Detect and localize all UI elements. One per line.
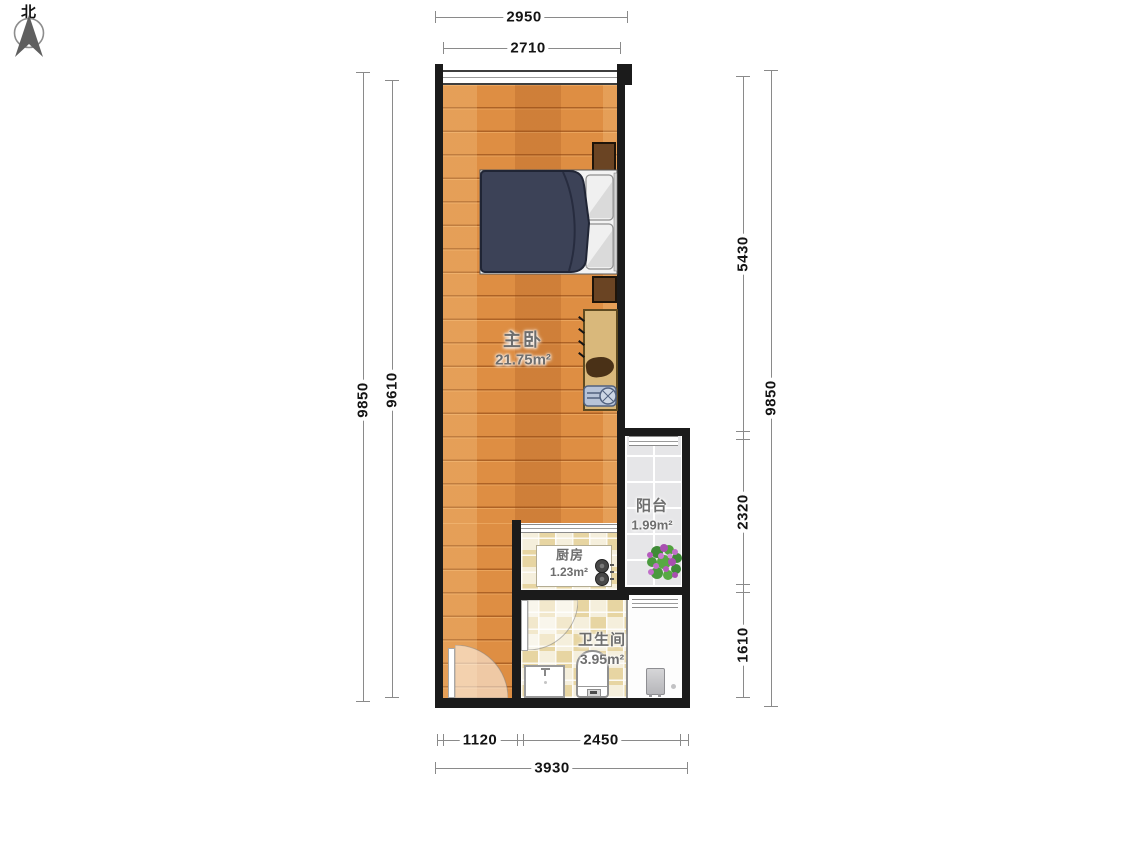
wall-balcony-bottom [621, 587, 690, 595]
stroller-item [583, 383, 618, 408]
bathroom-sink [524, 665, 565, 698]
dim-label-bottom-right: 2450 [580, 732, 621, 749]
dim-label-top-outer: 2950 [503, 9, 544, 26]
wall-kitchen-bottom [512, 590, 629, 600]
dim-label-bottom-outer: 3930 [531, 760, 572, 777]
bathroom-door-panel [521, 600, 528, 651]
plant-icon [644, 542, 684, 582]
dim-label-right-lower: 1610 [735, 624, 752, 665]
balcony-name-label: 阳台 [636, 495, 668, 516]
nightstand-bottom [592, 276, 617, 303]
water-heater [646, 668, 665, 695]
wall-balcony-top [621, 428, 690, 436]
dim-label-right-upper: 5430 [735, 233, 752, 274]
window-balcony [629, 436, 678, 446]
dim-label-left-inner: 9610 [384, 369, 401, 410]
dim-label-bottom-left: 1120 [460, 732, 501, 749]
wall-bottom [435, 698, 690, 708]
bathroom-name-label: 卫生间 [578, 629, 626, 650]
dim-label-right-outer: 9850 [763, 377, 780, 418]
kitchen-name-label: 厨房 [556, 545, 584, 564]
north-compass-icon [8, 0, 58, 64]
bed [479, 168, 618, 276]
bedroom-name-label: 主卧 [503, 326, 543, 352]
kitchen-area-label: 1.23m² [550, 565, 588, 579]
floor-plan: 北 2950 2710 9850 9610 [0, 0, 1125, 844]
dim-label-left-outer: 9850 [355, 379, 372, 420]
entry-door-panel [448, 648, 455, 698]
compass: 北 [8, 0, 58, 64]
window-kitchen-pass [521, 524, 617, 533]
wall-right [617, 64, 625, 600]
wall-kitchen-bath-left [512, 520, 521, 708]
bathroom-area-label: 3.95m² [580, 651, 624, 667]
window-bedroom-top [443, 70, 617, 85]
bedroom-floor [443, 85, 617, 523]
stove-icon [593, 558, 615, 586]
dim-label-top-inner: 2710 [507, 40, 548, 57]
floor-drain [671, 684, 676, 689]
window-utility [632, 599, 678, 608]
entry-door-swing-arc [455, 645, 508, 698]
dim-label-right-middle: 2320 [735, 491, 752, 532]
wall-left [435, 64, 443, 708]
balcony-area-label: 1.99m² [631, 518, 672, 533]
bedroom-area-label: 21.75m² [495, 352, 551, 369]
bathroom-door-swing-arc [528, 600, 578, 650]
